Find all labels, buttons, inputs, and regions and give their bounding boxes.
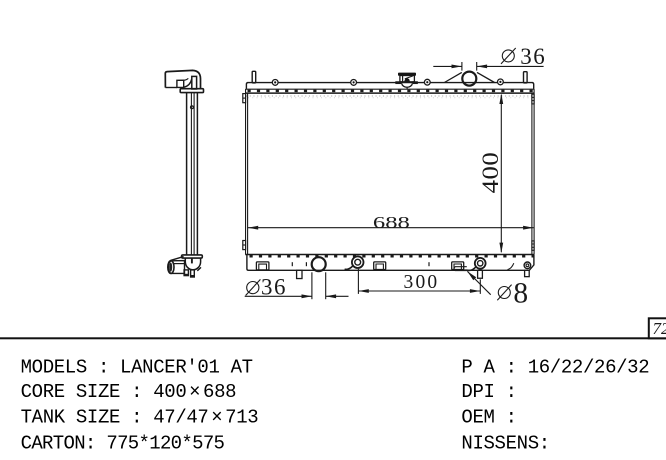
svg-text:P A : 16/22/26/32: P A : 16/22/26/32 (461, 356, 649, 378)
svg-text:OEM :: OEM : (461, 407, 516, 429)
svg-text:CORE SIZE : 400×688: CORE SIZE : 400×688 (21, 381, 237, 403)
svg-text:8: 8 (513, 277, 528, 309)
svg-text:DPI :: DPI : (461, 381, 516, 403)
svg-text:400: 400 (478, 152, 503, 194)
svg-text:300: 300 (404, 272, 440, 293)
svg-text:688: 688 (373, 213, 410, 232)
svg-text:CARTON: 775*120*575: CARTON: 775*120*575 (21, 432, 225, 454)
svg-text:72: 72 (653, 319, 666, 338)
svg-text:36: 36 (261, 275, 287, 300)
svg-text:MODELS : LANCER'01 AT: MODELS : LANCER'01 AT (21, 356, 253, 378)
svg-text:NISSENS:: NISSENS: (461, 432, 549, 454)
svg-text:36: 36 (520, 44, 546, 69)
